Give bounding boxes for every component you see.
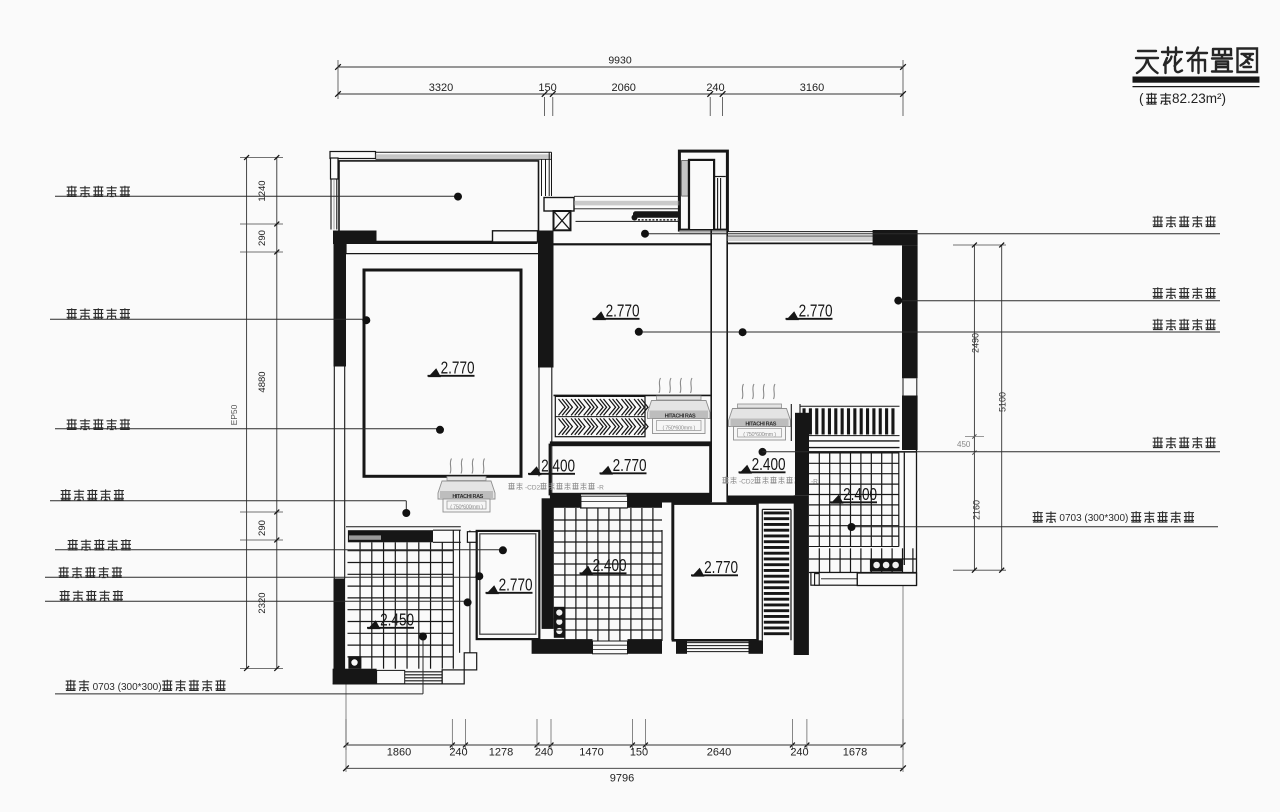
svg-text:5100: 5100 [998, 392, 1008, 412]
svg-text:2.770: 2.770 [799, 301, 833, 321]
svg-text:2.770: 2.770 [606, 301, 640, 321]
svg-text:9796: 9796 [610, 773, 634, 785]
svg-text:2.770: 2.770 [499, 575, 533, 595]
svg-text:290: 290 [257, 230, 268, 246]
svg-text:240: 240 [706, 82, 724, 94]
svg-text:2.400: 2.400 [593, 555, 627, 575]
svg-text:( 750*600mm ): ( 750*600mm ) [743, 432, 776, 438]
svg-text:(: ( [1139, 91, 1144, 106]
svg-text:0703 (300*300): 0703 (300*300) [1059, 513, 1128, 524]
svg-text:2320: 2320 [257, 592, 268, 613]
svg-text:2640: 2640 [707, 747, 731, 759]
svg-text:82.23m²): 82.23m²) [1172, 91, 1226, 106]
svg-text:1470: 1470 [579, 747, 603, 759]
svg-text:( 750*600mm ): ( 750*600mm ) [450, 504, 483, 510]
svg-text:-R: -R [597, 484, 604, 491]
svg-text:( 750*600mm ): ( 750*600mm ) [663, 425, 696, 431]
svg-text:2.450: 2.450 [380, 610, 414, 630]
svg-text:1240: 1240 [257, 180, 268, 201]
svg-text:1860: 1860 [387, 747, 411, 759]
svg-text:-CD2: -CD2 [525, 484, 541, 491]
svg-text:240: 240 [790, 747, 808, 759]
svg-text:2.770: 2.770 [704, 557, 738, 577]
svg-text:2.400: 2.400 [843, 484, 877, 504]
svg-text:-CD2: -CD2 [739, 478, 755, 485]
svg-text:3160: 3160 [800, 82, 824, 94]
svg-text:2.770: 2.770 [441, 358, 475, 378]
svg-text:2490: 2490 [971, 333, 981, 353]
svg-text:1678: 1678 [843, 747, 867, 759]
svg-text:0703 (300*300): 0703 (300*300) [93, 682, 162, 693]
svg-text:240: 240 [449, 747, 467, 759]
svg-text:290: 290 [257, 520, 268, 536]
svg-text:2060: 2060 [611, 82, 635, 94]
svg-text:450: 450 [957, 440, 971, 449]
svg-text:2160: 2160 [972, 500, 982, 520]
svg-text:EP50: EP50 [229, 404, 239, 425]
svg-text:240: 240 [535, 747, 553, 759]
svg-text:4880: 4880 [257, 371, 268, 392]
svg-text:150: 150 [538, 82, 556, 94]
svg-text:1278: 1278 [489, 747, 513, 759]
svg-text:2.770: 2.770 [613, 455, 647, 475]
svg-text:9930: 9930 [608, 55, 632, 67]
svg-text:2.400: 2.400 [541, 456, 575, 476]
svg-text:3320: 3320 [429, 82, 453, 94]
svg-text:2.400: 2.400 [752, 454, 786, 474]
svg-text:150: 150 [630, 747, 648, 759]
